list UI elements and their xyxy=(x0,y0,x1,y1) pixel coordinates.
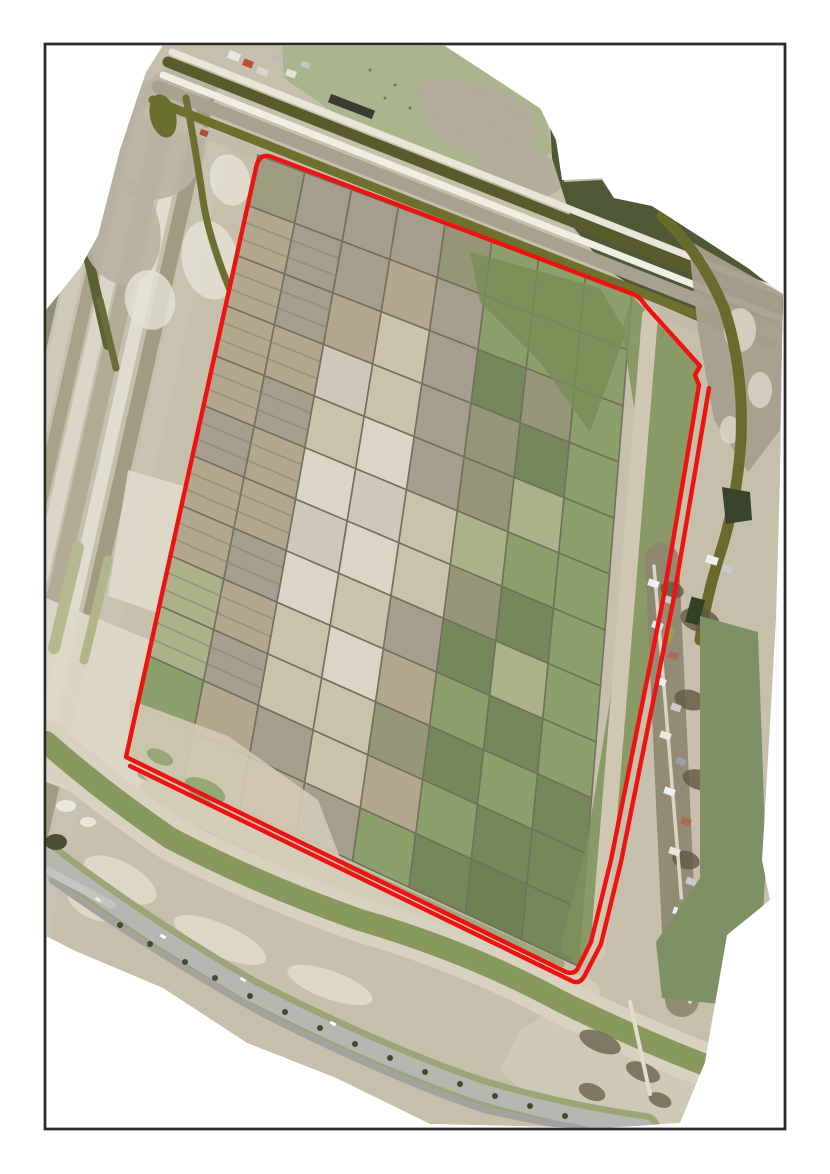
roadside-trees xyxy=(117,922,123,928)
roadside-trees xyxy=(422,1069,428,1075)
roadside-trees xyxy=(212,975,218,981)
roadside-trees xyxy=(562,1113,568,1119)
roadside-trees xyxy=(492,1093,498,1099)
orthophoto-scene xyxy=(0,0,830,1174)
top-pond-speckles xyxy=(384,97,387,100)
right-rubble-spots xyxy=(748,372,772,408)
roadside-trees xyxy=(182,959,188,965)
roadside-trees xyxy=(147,941,153,947)
map-figure xyxy=(0,0,830,1174)
roadside-trees xyxy=(387,1055,393,1061)
roadside-trees xyxy=(247,993,253,999)
left-white-spots xyxy=(56,800,76,812)
roadside-trees xyxy=(527,1103,533,1109)
right-small-dark-pond xyxy=(722,487,752,524)
top-pond-speckles xyxy=(409,107,412,110)
roadside-trees xyxy=(457,1081,463,1087)
roadside-trees xyxy=(352,1041,358,1047)
top-pond-speckles xyxy=(369,69,372,72)
left-white-spots xyxy=(80,817,96,827)
left-dark-pond xyxy=(45,834,67,850)
page xyxy=(0,0,830,1174)
roadside-trees xyxy=(282,1009,288,1015)
roadside-trees xyxy=(317,1025,323,1031)
top-pond-speckles xyxy=(394,84,397,87)
